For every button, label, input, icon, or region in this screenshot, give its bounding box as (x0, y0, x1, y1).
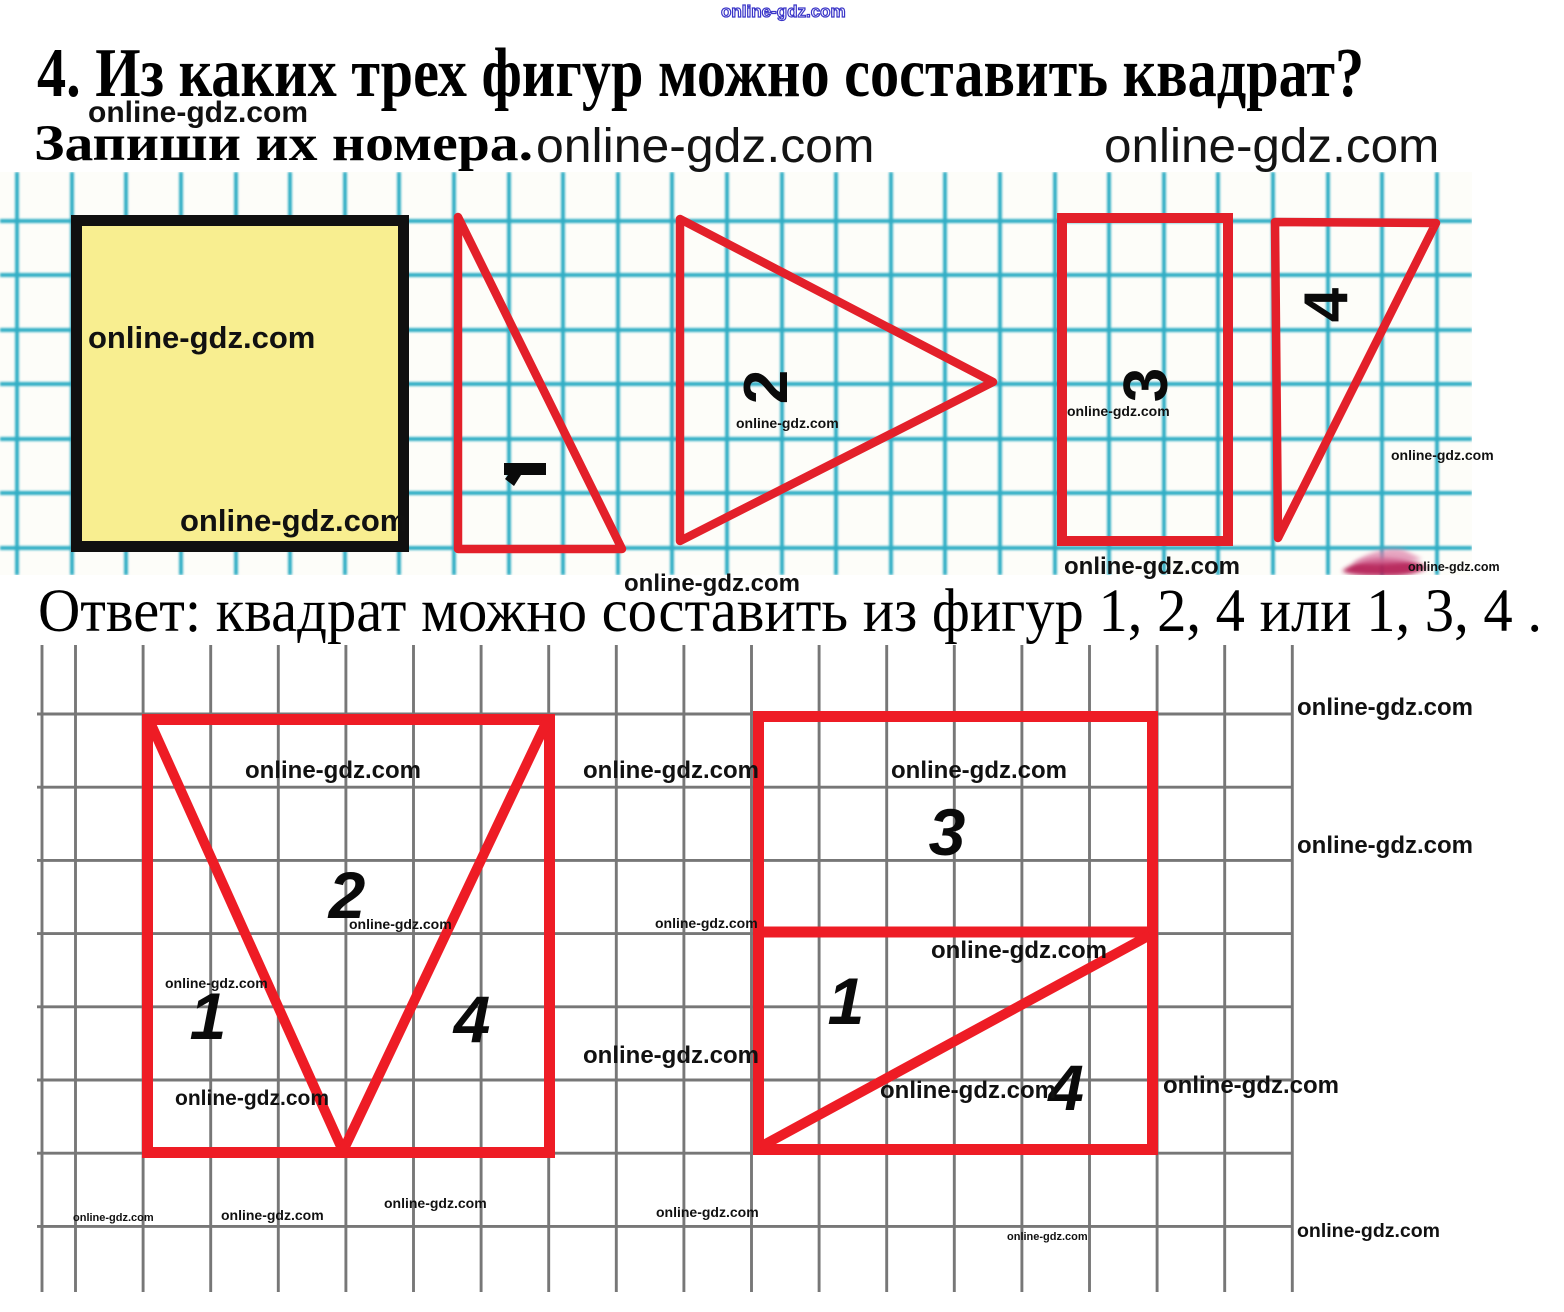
svg-text:3: 3 (1112, 368, 1181, 402)
svg-text:1: 1 (828, 964, 865, 1038)
svg-text:4: 4 (1292, 287, 1361, 322)
svg-text:3: 3 (929, 795, 966, 869)
svg-text:4: 4 (452, 982, 491, 1056)
svg-text:2: 2 (732, 370, 801, 404)
